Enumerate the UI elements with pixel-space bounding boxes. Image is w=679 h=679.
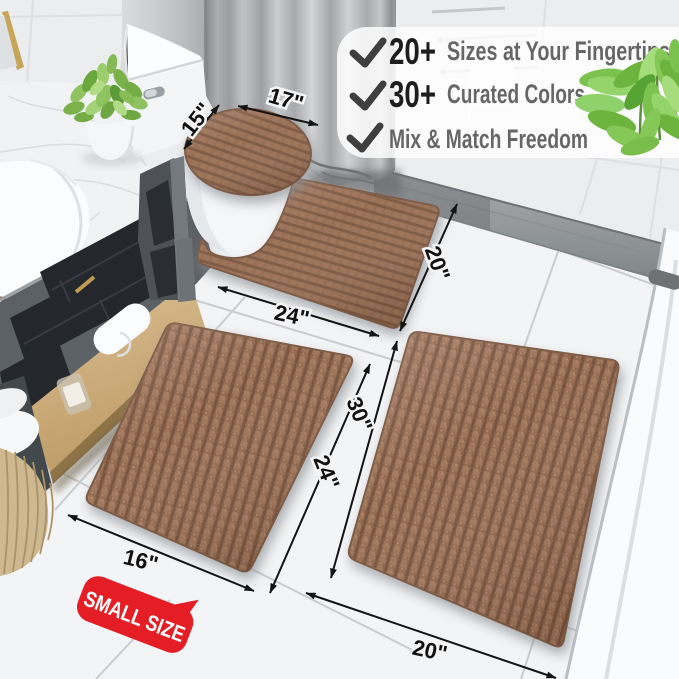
svg-text:Curated Colors: Curated Colors bbox=[447, 79, 585, 109]
svg-text:Sizes at Your Fingertips: Sizes at Your Fingertips bbox=[447, 36, 670, 66]
svg-text:Mix & Match Freedom: Mix & Match Freedom bbox=[389, 124, 588, 154]
svg-text:20+: 20+ bbox=[389, 31, 436, 72]
svg-text:30+: 30+ bbox=[389, 74, 436, 115]
